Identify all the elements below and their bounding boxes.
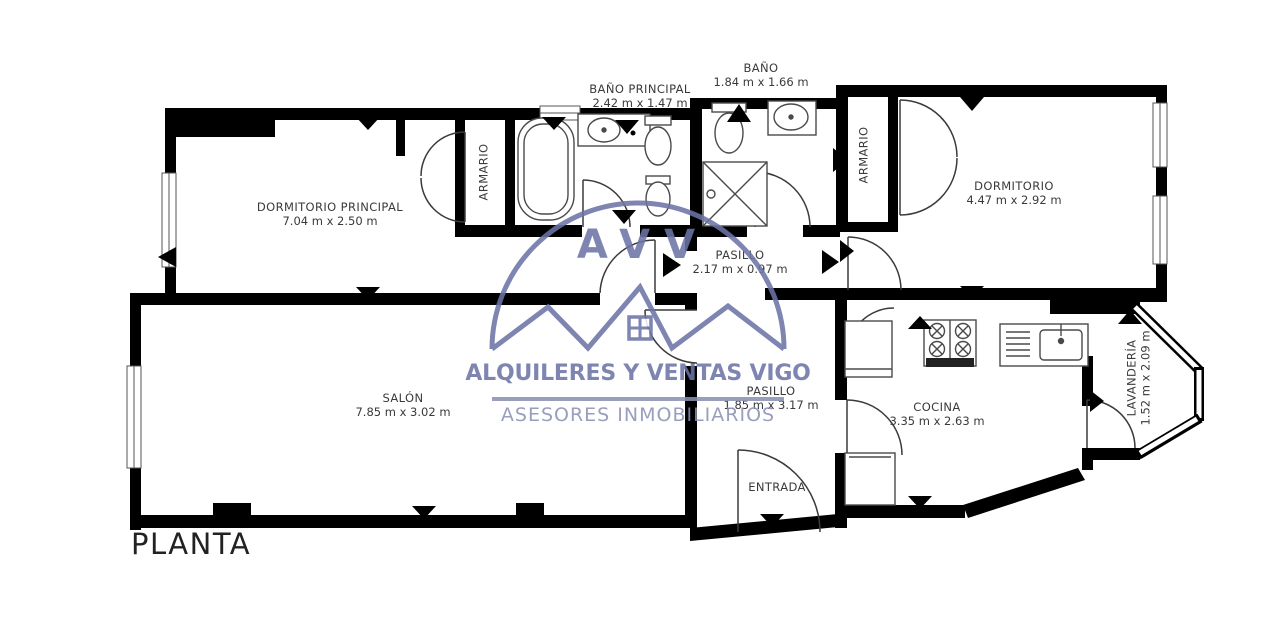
pillar — [516, 503, 544, 517]
pillar — [213, 503, 251, 517]
room-dims: 2.42 m x 1.47 m — [589, 97, 690, 111]
toilet-tank — [645, 116, 671, 125]
room-dims: 1.85 m x 3.17 m — [723, 399, 818, 413]
room-dims: 3.35 m x 2.63 m — [889, 415, 984, 429]
room-label-lavanderia: LAVANDERÍA 1.52 m x 2.09 m — [1126, 330, 1153, 425]
room-name: DORMITORIO — [966, 180, 1061, 194]
room-label-cocina: COCINA 3.35 m x 2.63 m — [889, 401, 984, 428]
door-arc — [600, 240, 655, 293]
room-name: BAÑO PRINCIPAL — [589, 83, 690, 97]
room-name: BAÑO — [713, 62, 808, 76]
room-label-pasillo-1: PASILLO 2.17 m x 0.97 m — [692, 249, 787, 276]
room-name: LAVANDERÍA — [1126, 330, 1140, 425]
door-arc — [645, 310, 697, 363]
room-label-bano-principal: BAÑO PRINCIPAL 2.42 m x 1.47 m — [589, 83, 690, 110]
room-dims: 4.47 m x 2.92 m — [966, 194, 1061, 208]
room-name: ARMARIO — [477, 144, 491, 201]
door-arc — [900, 158, 957, 215]
room-name: PASILLO — [723, 385, 818, 399]
room-label-salon: SALÓN 7.85 m x 3.02 m — [355, 392, 450, 419]
plan-title: PLANTA — [131, 527, 251, 561]
room-dims: 2.17 m x 0.97 m — [692, 263, 787, 277]
fridge — [845, 453, 895, 505]
room-label-dormitorio-principal: DORMITORIO PRINCIPAL 7.04 m x 2.50 m — [257, 201, 403, 228]
window — [1153, 103, 1167, 167]
room-label-bano: BAÑO 1.84 m x 1.66 m — [713, 62, 808, 89]
room-name: ENTRADA — [748, 481, 806, 495]
window — [1153, 196, 1167, 264]
room-label-pasillo-2: PASILLO 1.85 m x 3.17 m — [723, 385, 818, 412]
room-name: ARMARIO — [857, 127, 871, 184]
shower — [703, 162, 767, 226]
diagonal-wall — [963, 468, 1085, 518]
room-label-armario-1: ARMARIO — [477, 144, 491, 201]
bidet-bowl — [646, 182, 670, 216]
room-label-armario-2: ARMARIO — [857, 127, 871, 184]
hob — [924, 320, 976, 367]
room-dims: 1.52 m x 2.09 m — [1139, 330, 1153, 425]
room-dims: 7.85 m x 3.02 m — [355, 406, 450, 420]
room-name: COCINA — [889, 401, 984, 415]
door-arc — [848, 237, 901, 290]
toilet-bowl — [645, 127, 671, 165]
floorplan-page: DORMITORIO PRINCIPAL 7.04 m x 2.50 m BAÑ… — [0, 0, 1280, 629]
window — [127, 366, 141, 468]
kitchen-sink — [1000, 324, 1088, 366]
room-dims: 1.84 m x 1.66 m — [713, 76, 808, 90]
room-dims: 7.04 m x 2.50 m — [257, 215, 403, 229]
room-name: PASILLO — [692, 249, 787, 263]
door-arc — [900, 100, 957, 157]
room-name: DORMITORIO PRINCIPAL — [257, 201, 403, 215]
room-name: SALÓN — [355, 392, 450, 406]
room-label-dormitorio: DORMITORIO 4.47 m x 2.92 m — [966, 180, 1061, 207]
room-label-entrada: ENTRADA — [748, 481, 806, 495]
